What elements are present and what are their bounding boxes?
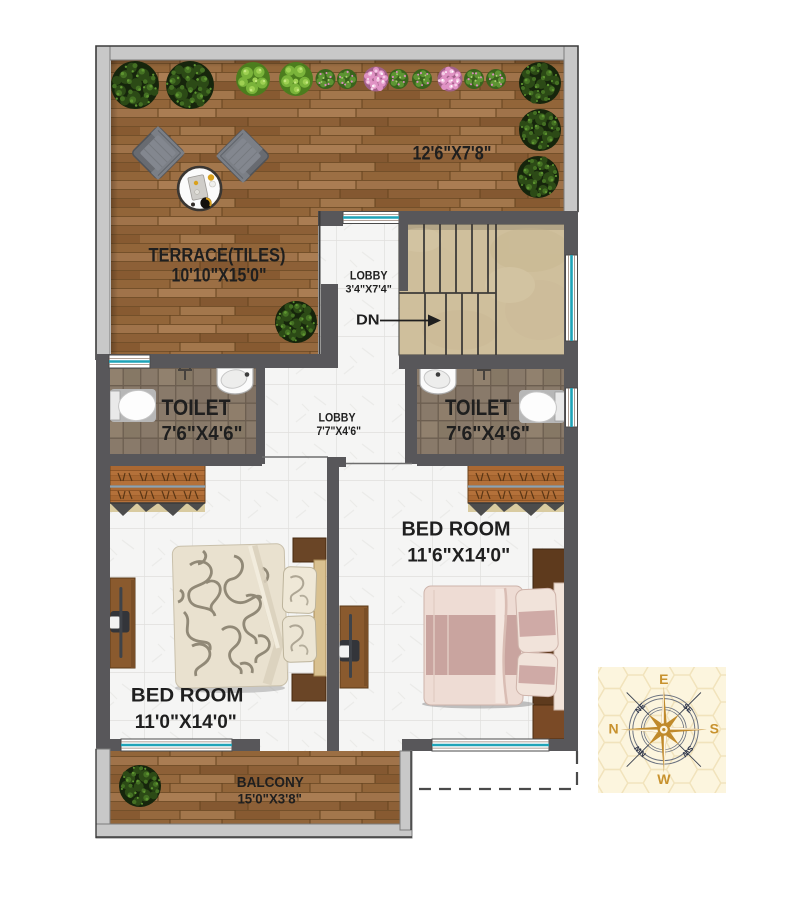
- svg-text:12'6"X7'8": 12'6"X7'8": [413, 144, 492, 165]
- svg-text:BED ROOM: BED ROOM: [131, 685, 244, 707]
- svg-text:S: S: [710, 721, 719, 737]
- svg-text:11'6"X14'0": 11'6"X14'0": [407, 544, 510, 566]
- svg-text:LOBBY: LOBBY: [319, 411, 357, 425]
- svg-text:N: N: [609, 721, 619, 737]
- svg-text:TOILET: TOILET: [162, 395, 231, 420]
- svg-text:BED ROOM: BED ROOM: [402, 518, 511, 540]
- svg-text:15'0"X3'8": 15'0"X3'8": [237, 791, 302, 806]
- svg-text:3'4"X7'4": 3'4"X7'4": [346, 284, 392, 296]
- svg-text:TOILET: TOILET: [445, 395, 511, 420]
- svg-text:11'0"X14'0": 11'0"X14'0": [135, 711, 237, 733]
- svg-text:7'7"X4'6": 7'7"X4'6": [317, 426, 362, 438]
- svg-text:LOBBY: LOBBY: [350, 269, 388, 283]
- svg-text:BALCONY: BALCONY: [237, 775, 304, 791]
- svg-text:W: W: [657, 771, 671, 787]
- svg-text:DN: DN: [356, 312, 380, 329]
- svg-text:10'10"X15'0": 10'10"X15'0": [172, 266, 267, 287]
- svg-text:7'6"X4'6": 7'6"X4'6": [162, 423, 243, 445]
- svg-text:TERRACE(TILES): TERRACE(TILES): [149, 245, 286, 267]
- svg-text:E: E: [659, 671, 668, 687]
- svg-text:7'6"X4'6": 7'6"X4'6": [446, 423, 530, 445]
